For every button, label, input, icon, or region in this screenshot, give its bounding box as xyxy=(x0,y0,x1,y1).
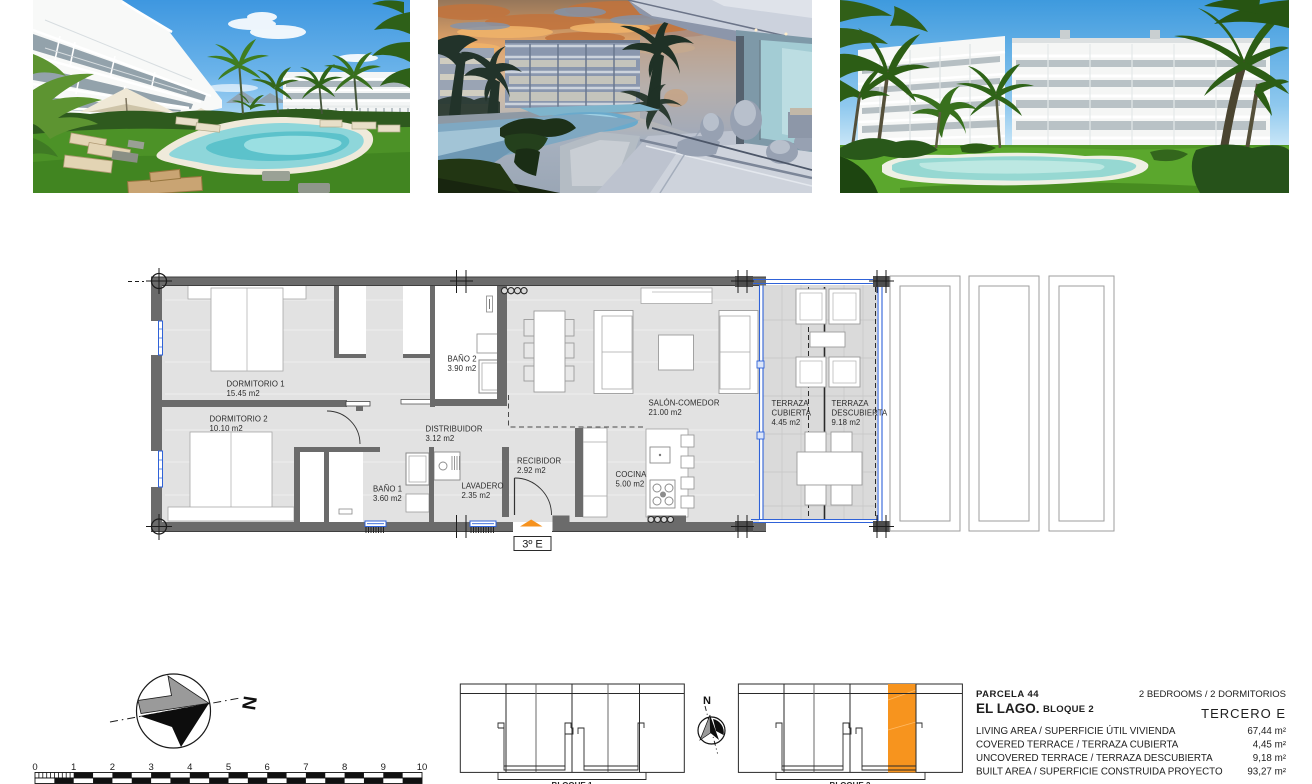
svg-text:TERRAZA: TERRAZA xyxy=(832,399,870,408)
svg-text:SALÓN-COMEDOR: SALÓN-COMEDOR xyxy=(649,399,720,408)
svg-text:LAVADERO: LAVADERO xyxy=(462,482,504,491)
svg-text:3.12 m2: 3.12 m2 xyxy=(426,434,455,443)
svg-text:3º E: 3º E xyxy=(522,539,543,551)
svg-text:PARCELA 44: PARCELA 44 xyxy=(976,689,1039,700)
svg-text:2: 2 xyxy=(110,762,115,773)
svg-text:BAÑO 2: BAÑO 2 xyxy=(448,355,477,364)
svg-text:8: 8 xyxy=(342,762,347,773)
svg-text:DORMITORIO 1: DORMITORIO 1 xyxy=(227,380,285,389)
svg-text:9.18 m2: 9.18 m2 xyxy=(832,418,861,427)
svg-text:DESCUBIERTA: DESCUBIERTA xyxy=(832,409,889,418)
svg-text:N: N xyxy=(703,695,711,707)
svg-text:4,45 m²: 4,45 m² xyxy=(1253,740,1287,751)
svg-text:TERCERO E: TERCERO E xyxy=(1201,706,1286,721)
svg-text:2 BEDROOMS / 2 DORMITORIOS: 2 BEDROOMS / 2 DORMITORIOS xyxy=(1139,689,1286,700)
svg-text:9: 9 xyxy=(381,762,386,773)
svg-text:N: N xyxy=(237,694,260,711)
svg-text:93,27 m²: 93,27 m² xyxy=(1247,767,1286,778)
svg-text:4: 4 xyxy=(187,762,192,773)
svg-text:3.60 m2: 3.60 m2 xyxy=(373,494,402,503)
svg-text:DISTRIBUIDOR: DISTRIBUIDOR xyxy=(426,425,483,434)
svg-text:RECIBIDOR: RECIBIDOR xyxy=(517,457,561,466)
svg-text:EL LAGO.: EL LAGO. xyxy=(976,701,1040,716)
svg-text:DORMITORIO 2: DORMITORIO 2 xyxy=(210,415,268,424)
svg-text:2.92 m2: 2.92 m2 xyxy=(517,466,546,475)
svg-text:COCINA: COCINA xyxy=(616,470,648,479)
svg-text:BUILT AREA / SUPERFICIE CONSTR: BUILT AREA / SUPERFICIE CONSTRUIDA PROYE… xyxy=(976,767,1223,778)
svg-text:15.45 m2: 15.45 m2 xyxy=(227,389,260,398)
svg-text:10: 10 xyxy=(417,762,428,773)
svg-text:10.10 m2: 10.10 m2 xyxy=(210,424,243,433)
svg-text:1: 1 xyxy=(71,762,76,773)
svg-text:BAÑO 1: BAÑO 1 xyxy=(373,485,402,494)
svg-text:3.90 m2: 3.90 m2 xyxy=(448,364,477,373)
svg-text:BLOQUE 2: BLOQUE 2 xyxy=(1043,704,1094,715)
svg-text:5.00 m2: 5.00 m2 xyxy=(616,480,645,489)
svg-text:CUBIERTA: CUBIERTA xyxy=(772,409,812,418)
svg-text:5: 5 xyxy=(226,762,231,773)
svg-text:0: 0 xyxy=(32,762,37,773)
svg-text:21.00 m2: 21.00 m2 xyxy=(649,408,682,417)
svg-text:2.35 m2: 2.35 m2 xyxy=(462,491,491,500)
svg-text:LIVING AREA / SUPERFICIE ÚTIL: LIVING AREA / SUPERFICIE ÚTIL VIVIENDA xyxy=(976,726,1176,737)
svg-text:COVERED TERRACE / TERRAZA CUBI: COVERED TERRACE / TERRAZA CUBIERTA xyxy=(976,740,1179,751)
svg-text:67,44 m²: 67,44 m² xyxy=(1247,726,1286,737)
svg-text:UNCOVERED TERRACE / TERRAZA DE: UNCOVERED TERRACE / TERRAZA DESCUBIERTA xyxy=(976,753,1213,764)
svg-text:TERRAZA: TERRAZA xyxy=(772,399,810,408)
svg-text:7: 7 xyxy=(303,762,308,773)
svg-text:4.45 m2: 4.45 m2 xyxy=(772,418,801,427)
svg-text:3: 3 xyxy=(148,762,153,773)
svg-text:9,18 m²: 9,18 m² xyxy=(1253,753,1287,764)
svg-text:6: 6 xyxy=(265,762,270,773)
